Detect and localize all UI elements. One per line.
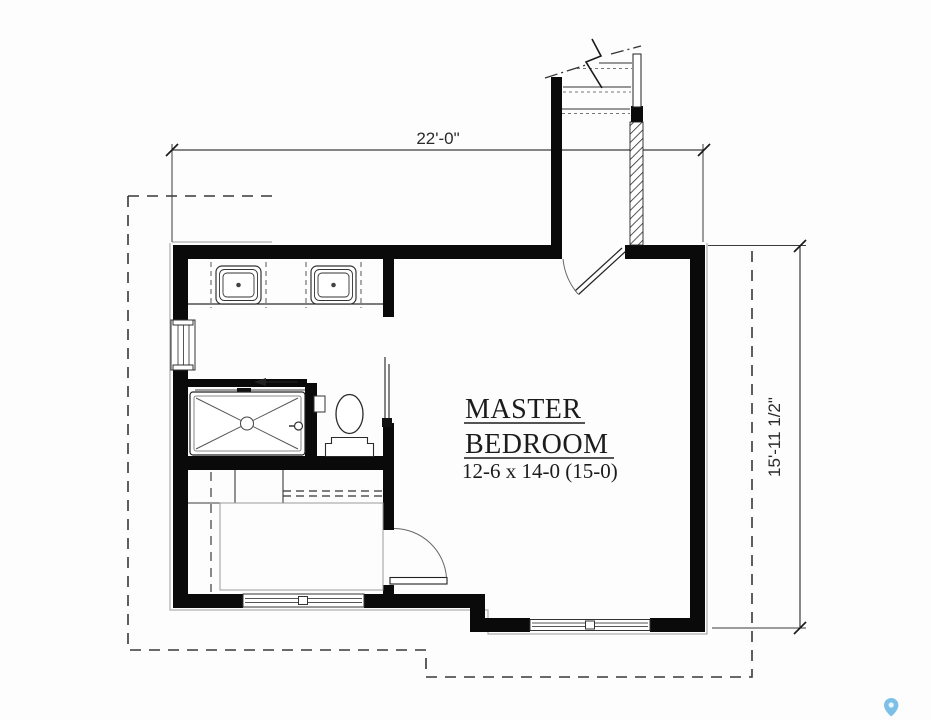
- stair-thin-wall: [633, 54, 641, 107]
- left-window: [171, 320, 195, 370]
- sink-right: [311, 266, 356, 304]
- walk-in-closet: [188, 470, 383, 592]
- drain: [331, 283, 336, 288]
- drain: [236, 283, 241, 288]
- bathroom-sliding-door: [382, 357, 392, 427]
- sink-left: [216, 266, 261, 304]
- room-size-label: 12-6 x 14-0 (15-0): [462, 459, 618, 483]
- walls: [173, 77, 705, 632]
- floorplan-drawing: 22'-0" 15'-11 1/2": [0, 0, 931, 720]
- stair-landing-door: [563, 248, 626, 295]
- stair-hatched-wall: [630, 122, 643, 245]
- room-name-line1: MASTER: [465, 394, 582, 425]
- window-bottom-right: [530, 620, 650, 631]
- shower-drain: [241, 417, 254, 430]
- closet-floor-outline: [220, 503, 383, 590]
- room-label: MASTER BEDROOM 12-6 x 14-0 (15-0): [462, 394, 618, 483]
- toilet: [326, 395, 374, 457]
- dimension-right-label: 15'-11 1/2": [765, 397, 784, 477]
- closet-door: [390, 529, 447, 585]
- room-name-line2: BEDROOM: [465, 429, 609, 460]
- window-bottom-left: [243, 594, 364, 607]
- dimension-top-label: 22'-0": [416, 129, 459, 148]
- shower-niche: [314, 396, 325, 412]
- map-pin-icon[interactable]: [884, 698, 898, 717]
- dimension-top: 22'-0": [166, 129, 710, 242]
- shower: [190, 378, 325, 455]
- dimension-right: 15'-11 1/2": [708, 240, 806, 634]
- stair-treads: [562, 63, 632, 114]
- vanity: [188, 262, 383, 308]
- floorplan-page: 22'-0" 15'-11 1/2": [0, 0, 931, 720]
